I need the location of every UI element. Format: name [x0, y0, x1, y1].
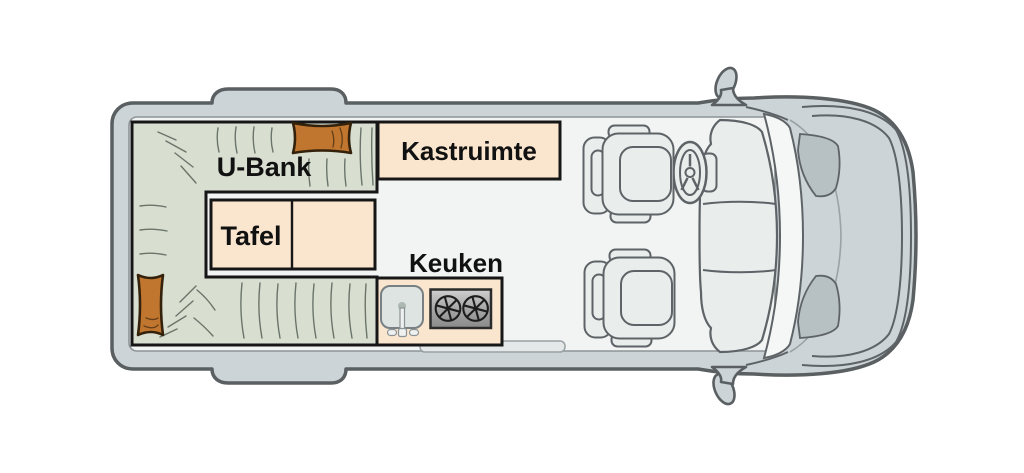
faucet — [400, 308, 405, 330]
label-tafel: Tafel — [220, 221, 281, 251]
faucet-handle-left — [388, 330, 397, 336]
faucet-handle-right — [410, 330, 419, 336]
faucet-handle-center — [399, 329, 407, 337]
label-kastruimte: Kastruimte — [401, 136, 537, 166]
passenger-seat — [585, 250, 675, 347]
label-keuken: Keuken — [409, 248, 503, 278]
seat-cushion — [604, 258, 675, 339]
pillow-top-icon — [293, 123, 351, 153]
floorplan-canvas: U-Bank Kastruimte Tafel Keuken — [0, 0, 1024, 473]
seat-cushion — [603, 134, 674, 215]
stove-icon — [431, 290, 492, 329]
driver-seat — [584, 126, 674, 223]
wheel-hub — [686, 168, 695, 177]
pillow-left-icon — [138, 275, 163, 335]
keuken-kitchen-unit — [377, 278, 502, 345]
camper-floorplan: U-Bank Kastruimte Tafel Keuken — [0, 0, 1024, 473]
label-u-bank: U-Bank — [217, 152, 312, 182]
